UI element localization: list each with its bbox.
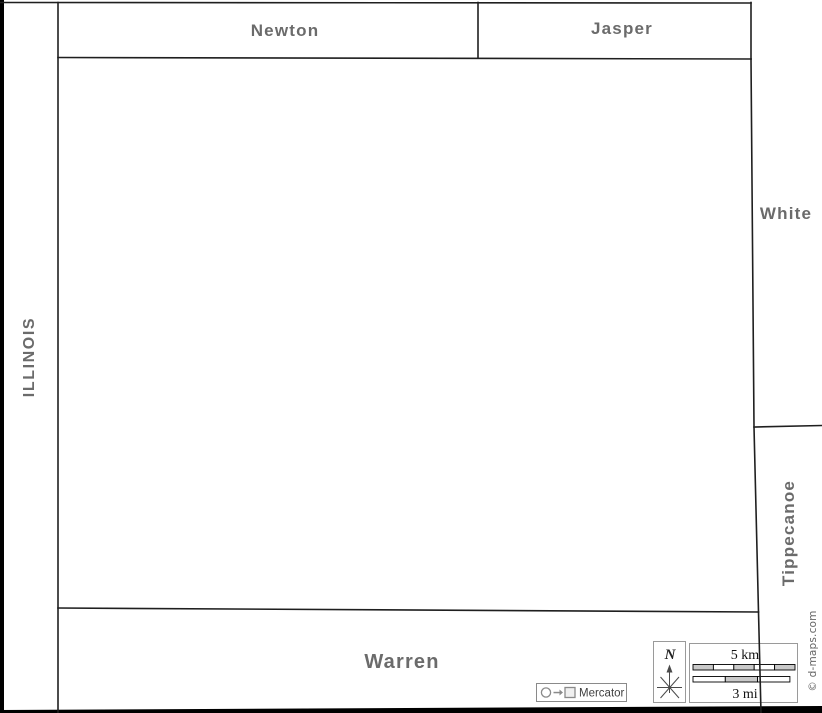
region-label-white: White <box>726 203 822 225</box>
scale-km-label: 5 km <box>731 648 760 663</box>
region-label-tippecanoe: Tippecanoe <box>778 453 800 613</box>
projection-arrow-icon <box>554 690 564 696</box>
county-borders-svg <box>0 0 822 713</box>
compass-north-letter: N <box>664 647 677 663</box>
compass-center-dot <box>668 686 671 689</box>
white-tippecanoe-border <box>754 426 822 428</box>
map-square-icon <box>565 688 575 698</box>
region-label-illinois: ILLINOIS <box>19 287 41 427</box>
region-label-jasper: Jasper <box>522 18 722 40</box>
region-label-newton: Newton <box>185 20 385 42</box>
globe-circle-icon <box>541 688 550 697</box>
north-arrow-icon <box>667 665 673 673</box>
projection-icons: Mercator <box>537 684 626 701</box>
bottom-edge-bar <box>0 706 822 713</box>
compass-rose-icon: N <box>654 642 685 702</box>
scale-bar-km <box>693 665 795 671</box>
compass-box: N <box>653 641 686 703</box>
county-north-border <box>58 58 751 60</box>
region-label-warren: Warren <box>302 651 502 673</box>
county-map-canvas: Newton Jasper White Tippecanoe Warren IL… <box>0 0 822 713</box>
projection-name: Mercator <box>579 688 625 700</box>
county-south-border <box>58 608 759 612</box>
illinois-edge-bar <box>0 0 4 713</box>
county-east-border <box>751 59 761 713</box>
credit-label: © d-maps.com <box>807 591 819 711</box>
scale-bars: 5 km 3 mi <box>690 644 797 702</box>
scale-bar-mi <box>693 677 790 683</box>
north-neatline <box>0 3 751 4</box>
compass-star-lines <box>657 669 682 698</box>
scale-mi-label: 3 mi <box>732 687 757 702</box>
projection-indicator: Mercator <box>536 683 627 702</box>
scale-box: 5 km 3 mi <box>689 643 798 703</box>
